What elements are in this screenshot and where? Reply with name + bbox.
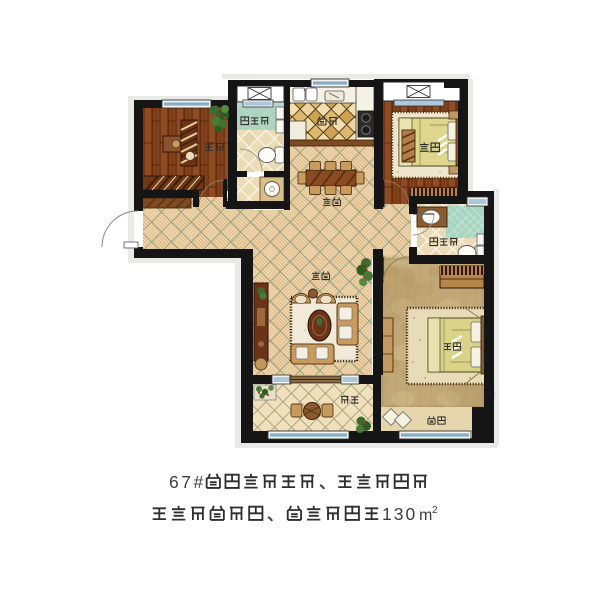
svg-text:67#: 67# <box>169 472 206 492</box>
svg-text:m: m <box>419 507 432 524</box>
svg-text:130: 130 <box>382 504 417 524</box>
svg-text:2: 2 <box>432 505 438 516</box>
